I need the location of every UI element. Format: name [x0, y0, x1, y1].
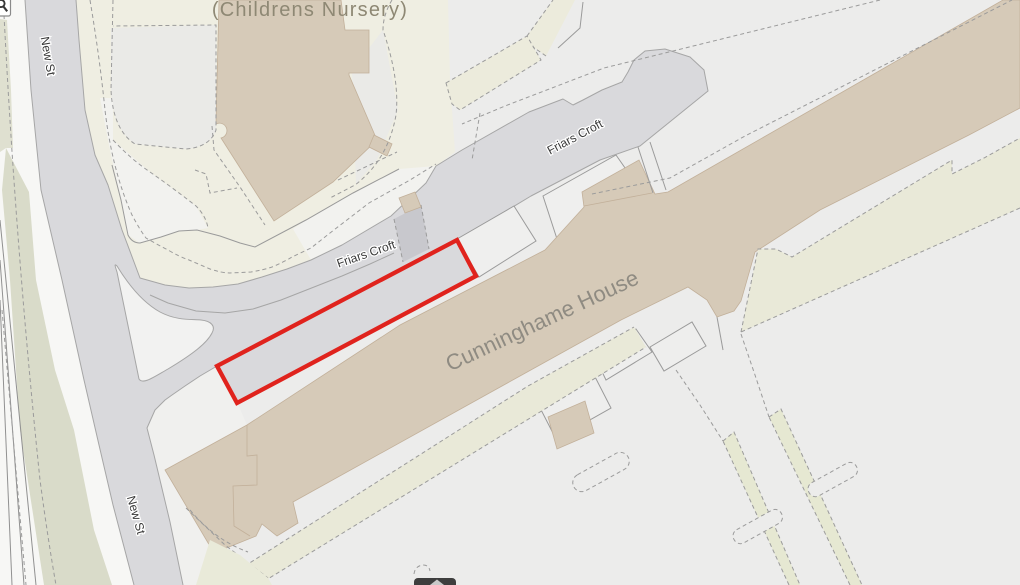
- svg-text:(Childrens Nursery): (Childrens Nursery): [212, 0, 408, 21]
